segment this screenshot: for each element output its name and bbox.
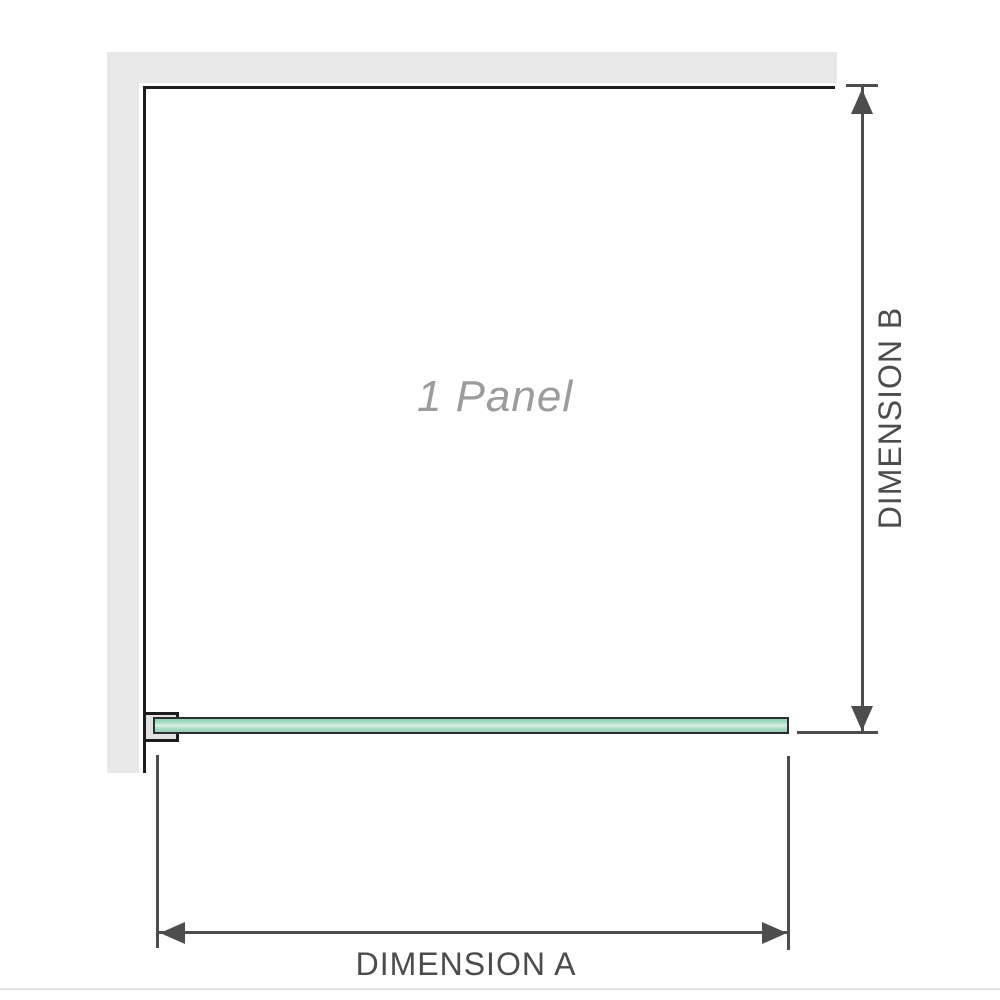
dimension-b-bottom-tick	[797, 731, 878, 734]
dimension-a-right-extension-line	[787, 756, 790, 950]
arrow-up-icon	[851, 89, 873, 114]
page-bottom-divider	[0, 988, 1000, 990]
arrow-down-icon	[851, 706, 873, 731]
dimension-a-left-extension-line	[156, 755, 159, 948]
shower-screen-dimension-diagram: 1 Panel DIMENSION B DIMENSION A	[0, 0, 1000, 1000]
wall-left	[107, 52, 139, 773]
wall-top	[107, 52, 837, 83]
panel-count-label: 1 Panel	[345, 372, 645, 422]
enclosure-top-edge	[143, 86, 835, 89]
dimension-a-label: DIMENSION A	[316, 946, 616, 982]
glass-panel	[153, 717, 789, 734]
dimension-b-line	[861, 87, 864, 732]
enclosure-left-edge	[143, 86, 146, 773]
dimension-b-label: DIMENSION B	[870, 268, 910, 568]
dimension-a-line	[159, 931, 788, 934]
arrow-right-icon	[762, 922, 787, 944]
arrow-left-icon	[160, 922, 185, 944]
